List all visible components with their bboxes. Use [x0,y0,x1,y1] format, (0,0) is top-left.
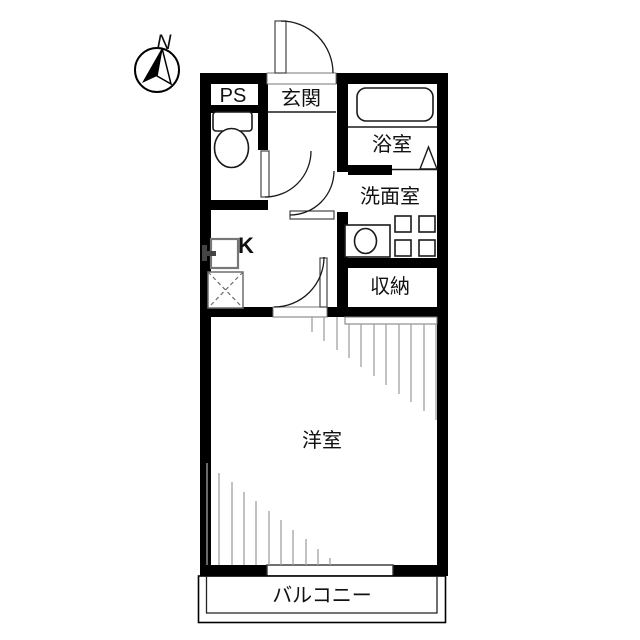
label-balcony: バルコニー [272,585,372,607]
compass-north-label: N [156,31,172,54]
compass: N [135,31,179,92]
label-pipe-space: PS [220,85,247,107]
washroom-door [290,171,334,219]
western-room-door [274,257,327,307]
bathtub-rect [357,88,433,121]
refrigerator-space [208,272,243,308]
entrance-door-arc [281,21,333,73]
entrance-door [275,21,333,73]
room-labels: PS 玄関 浴室 洗面室 K 収納 洋室 バルコニー [220,85,420,607]
bathroom-door-mark [420,147,437,169]
toilet-bowl [215,129,249,168]
western-room-door-arc [274,257,324,307]
washroom-door-arc [290,171,334,215]
label-storage: 収納 [370,275,410,298]
sink-basin [355,229,377,254]
kitchen-faucet-spout [206,251,216,256]
label-bathroom: 浴室 [372,133,412,156]
floor-plan: N [0,0,640,640]
toilet-door [261,151,311,197]
room-door-threshold [273,307,327,317]
sloped-ceiling-hatch-bottom-left [207,463,330,565]
toilet [213,112,252,168]
label-entrance: 玄関 [281,87,321,110]
label-washroom: 洗面室 [360,185,420,208]
entrance-threshold [267,73,336,84]
bathtub [348,88,437,127]
sloped-ceiling-hatch-top-right [312,317,436,420]
label-western-room: 洋室 [302,429,342,452]
storage-sliding-door [345,317,437,324]
washroom-sink [345,225,390,257]
label-kitchen: K [238,233,254,258]
balcony-window [267,565,393,576]
toilet-door-leaf [261,151,269,197]
floor-plan-drawing: N [0,0,640,640]
entrance-door-leaf [275,21,286,73]
washing-machine-pan [395,216,435,256]
toilet-door-arc [265,151,311,197]
